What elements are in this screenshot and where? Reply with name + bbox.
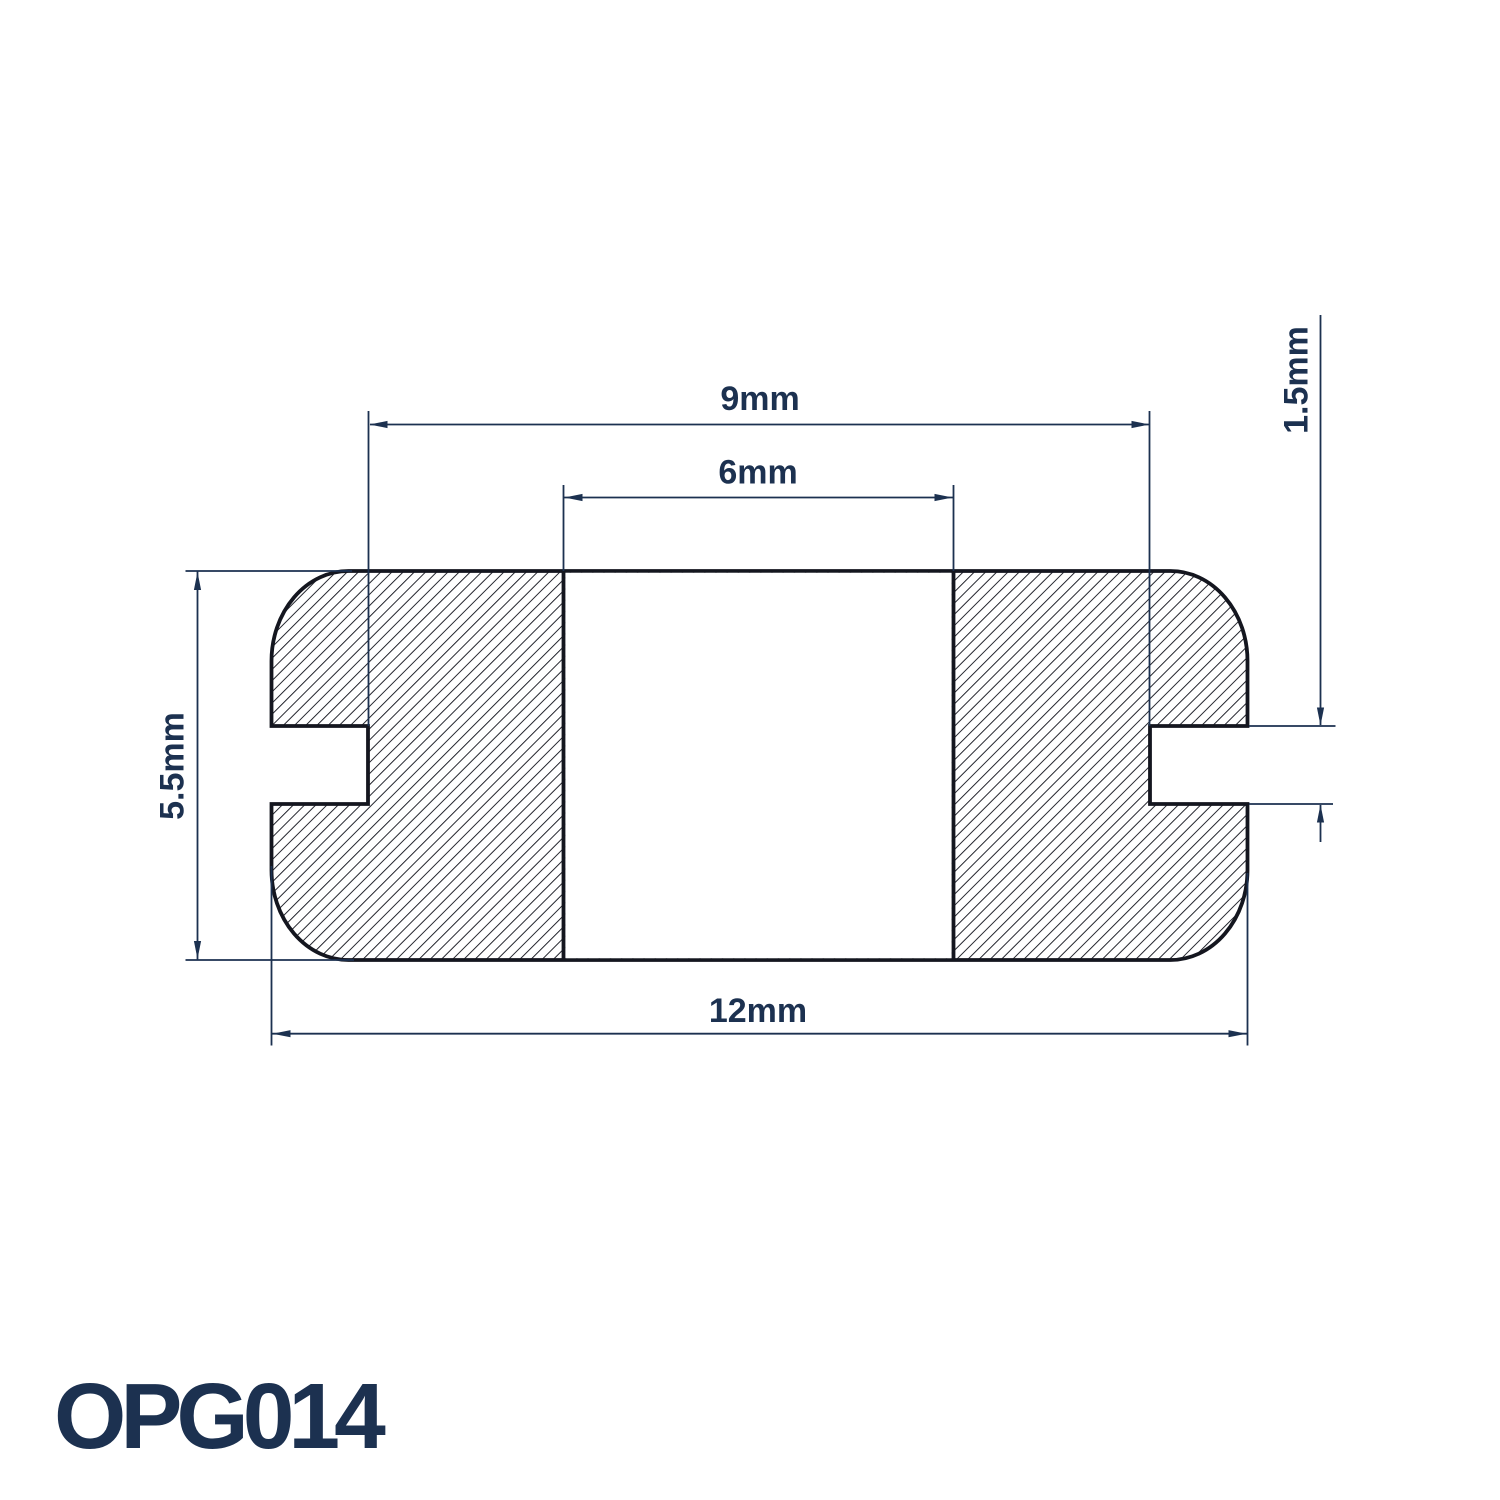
svg-text:OPG014: OPG014 — [54, 1364, 386, 1468]
svg-text:1.5mm: 1.5mm — [1278, 326, 1316, 434]
svg-text:12mm: 12mm — [709, 992, 807, 1030]
svg-text:9mm: 9mm — [720, 380, 799, 418]
svg-text:5.5mm: 5.5mm — [154, 712, 192, 820]
svg-text:6mm: 6mm — [718, 454, 797, 492]
